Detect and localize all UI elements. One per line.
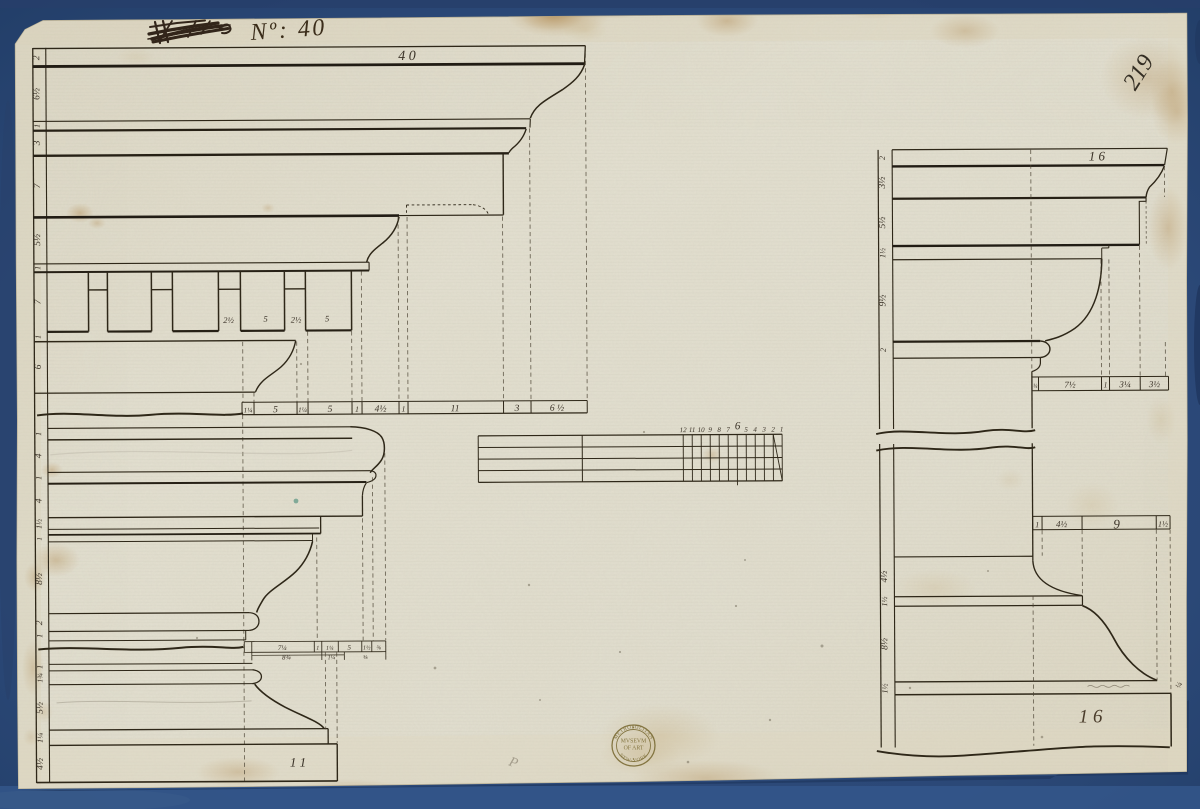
svg-text:1¼: 1¼ [328, 655, 336, 661]
svg-text:9: 9 [708, 426, 712, 434]
svg-text:1¾: 1¾ [35, 673, 44, 683]
svg-text:9½: 9½ [877, 295, 888, 307]
svg-text:1½: 1½ [880, 596, 889, 606]
svg-text:8: 8 [717, 426, 721, 434]
svg-text:2: 2 [35, 620, 45, 625]
svg-text:7: 7 [726, 426, 730, 434]
svg-text:8½: 8½ [34, 573, 45, 585]
svg-text:Nº: 40: Nº: 40 [249, 15, 328, 46]
svg-text:6 ½: 6 ½ [550, 403, 564, 414]
svg-text:1 1: 1 1 [290, 755, 306, 770]
svg-text:1: 1 [316, 646, 319, 652]
svg-text:1: 1 [34, 476, 43, 480]
svg-text:12: 12 [680, 426, 688, 434]
svg-text:1¼: 1¼ [244, 406, 254, 414]
svg-text:6½: 6½ [31, 88, 42, 100]
svg-text:8¾: 8¾ [282, 653, 292, 661]
svg-text:7¼: 7¼ [278, 644, 288, 652]
svg-text:5½: 5½ [877, 217, 888, 229]
svg-text:5: 5 [744, 426, 748, 434]
svg-text:¾: ¾ [1033, 384, 1038, 390]
svg-text:1¼: 1¼ [326, 646, 334, 652]
svg-text:1½: 1½ [880, 683, 889, 693]
svg-text:11: 11 [689, 426, 696, 434]
svg-text:1 6: 1 6 [1079, 706, 1103, 727]
svg-text:4 0: 4 0 [398, 49, 416, 64]
svg-text:2: 2 [771, 426, 775, 434]
svg-text:4: 4 [753, 426, 757, 434]
svg-text:3½: 3½ [877, 177, 888, 190]
svg-text:1: 1 [1035, 520, 1039, 529]
svg-text:2: 2 [878, 156, 887, 160]
svg-text:1: 1 [36, 537, 44, 541]
svg-text:⅝: ⅝ [363, 655, 368, 661]
svg-text:1: 1 [1104, 380, 1108, 389]
svg-text:3¼: 3¼ [1118, 379, 1131, 389]
svg-text:1¼: 1¼ [298, 406, 308, 414]
svg-text:1: 1 [355, 405, 359, 414]
svg-text:6: 6 [735, 420, 741, 432]
svg-text:5½: 5½ [32, 234, 43, 246]
svg-text:3: 3 [761, 426, 766, 434]
svg-text:1: 1 [33, 266, 42, 270]
svg-text:5½: 5½ [35, 702, 46, 714]
svg-text:1: 1 [34, 432, 43, 436]
svg-text:1¼: 1¼ [36, 733, 45, 743]
svg-text:1 6: 1 6 [1089, 148, 1106, 163]
svg-text:10: 10 [698, 426, 706, 434]
svg-text:2½: 2½ [291, 315, 302, 325]
svg-text:9: 9 [1113, 516, 1120, 531]
svg-text:1: 1 [33, 124, 42, 128]
svg-text:1½: 1½ [1158, 520, 1168, 529]
svg-text:MVSEVM: MVSEVM [621, 739, 646, 745]
svg-text:1: 1 [35, 634, 44, 638]
svg-text:11: 11 [451, 404, 460, 414]
svg-text:2½: 2½ [223, 315, 234, 325]
svg-text:1½: 1½ [363, 645, 371, 652]
svg-text:4½: 4½ [1056, 519, 1068, 529]
svg-text:4½: 4½ [375, 404, 387, 415]
svg-text:1: 1 [35, 665, 44, 669]
svg-text:5: 5 [263, 314, 267, 324]
svg-text:3½: 3½ [1148, 379, 1161, 389]
svg-text:3: 3 [514, 404, 520, 414]
svg-text:2: 2 [32, 55, 42, 60]
svg-text:2: 2 [879, 348, 888, 352]
svg-text:5: 5 [348, 644, 352, 652]
svg-text:3: 3 [33, 140, 43, 146]
svg-text:1½: 1½ [878, 248, 887, 258]
svg-text:4½: 4½ [879, 571, 890, 583]
svg-text:4½: 4½ [35, 758, 46, 770]
svg-text:4: 4 [34, 453, 44, 458]
svg-text:5: 5 [325, 313, 329, 323]
svg-text:⅜: ⅜ [377, 645, 382, 651]
svg-text:1½: 1½ [35, 519, 44, 529]
svg-text:4: 4 [35, 498, 45, 503]
svg-text:7½: 7½ [1064, 380, 1076, 390]
svg-text:8½: 8½ [879, 638, 890, 650]
svg-text:5: 5 [328, 405, 333, 415]
svg-text:1: 1 [34, 335, 43, 339]
svg-text:6: 6 [34, 364, 44, 369]
svg-text:5: 5 [273, 405, 278, 415]
svg-text:1: 1 [780, 426, 784, 434]
svg-text:1: 1 [402, 405, 406, 414]
svg-text:OF ART: OF ART [624, 746, 644, 752]
